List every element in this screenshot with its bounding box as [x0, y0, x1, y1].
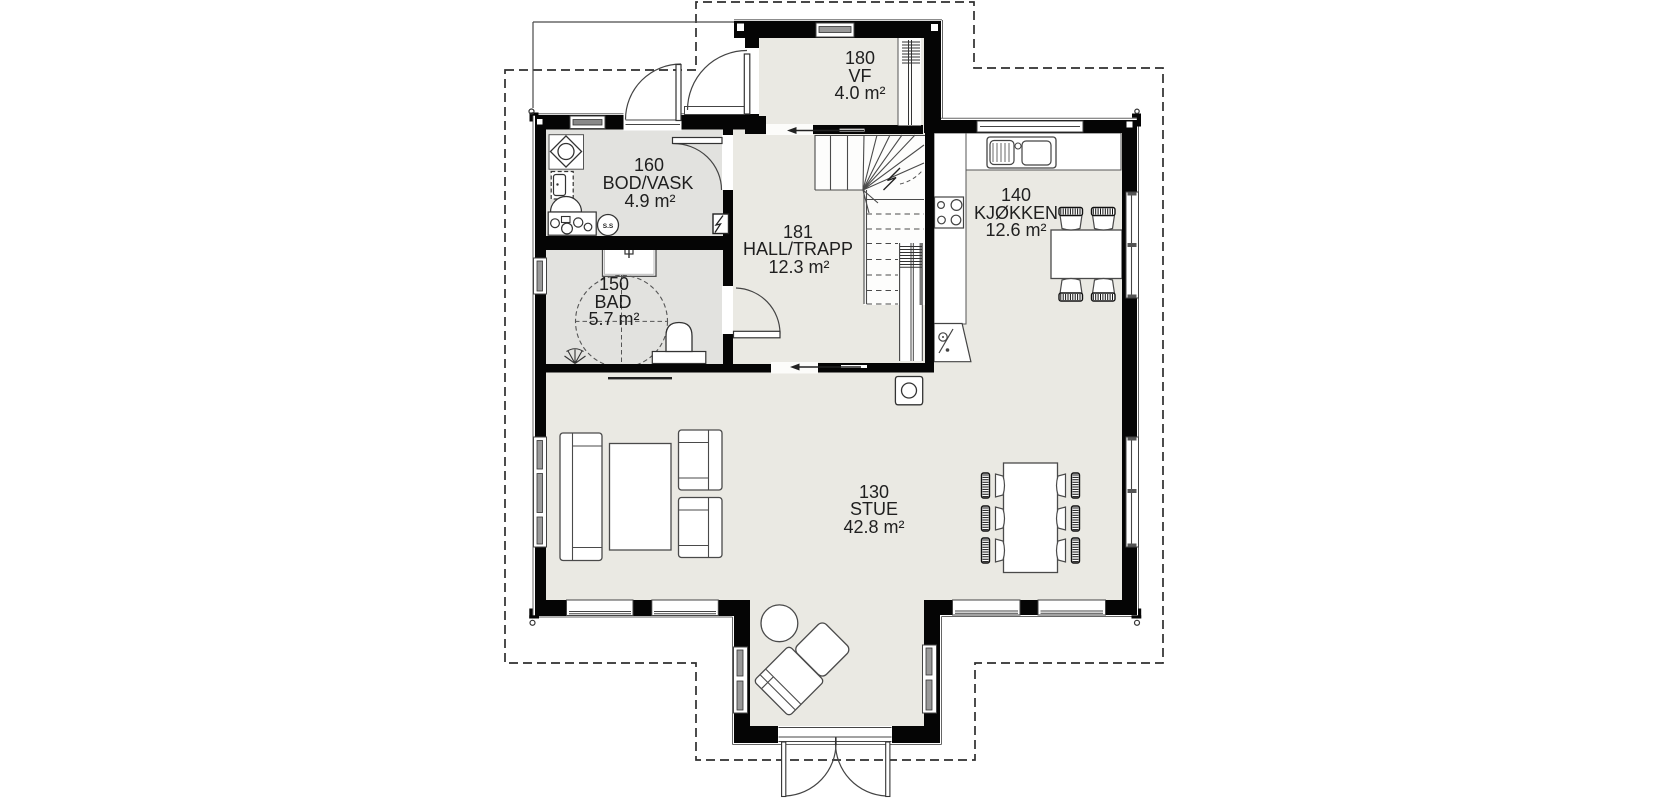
svg-text:180: 180 [845, 48, 875, 68]
svg-text:STUE: STUE [850, 499, 898, 519]
svg-text:4.0 m²: 4.0 m² [834, 83, 885, 103]
svg-text:5.7 m²: 5.7 m² [588, 309, 639, 329]
svg-text:4.9 m²: 4.9 m² [624, 191, 675, 211]
svg-text:160: 160 [634, 155, 664, 175]
svg-text:140: 140 [1001, 185, 1031, 205]
svg-text:42.8 m²: 42.8 m² [843, 517, 904, 537]
svg-text:HALL/TRAPP: HALL/TRAPP [743, 239, 853, 259]
svg-text:12.6 m²: 12.6 m² [985, 220, 1046, 240]
svg-text:12.3 m²: 12.3 m² [768, 257, 829, 277]
svg-text:S.S: S.S [603, 223, 614, 230]
svg-text:BOD/VASK: BOD/VASK [603, 173, 694, 193]
svg-text:150: 150 [599, 274, 629, 294]
